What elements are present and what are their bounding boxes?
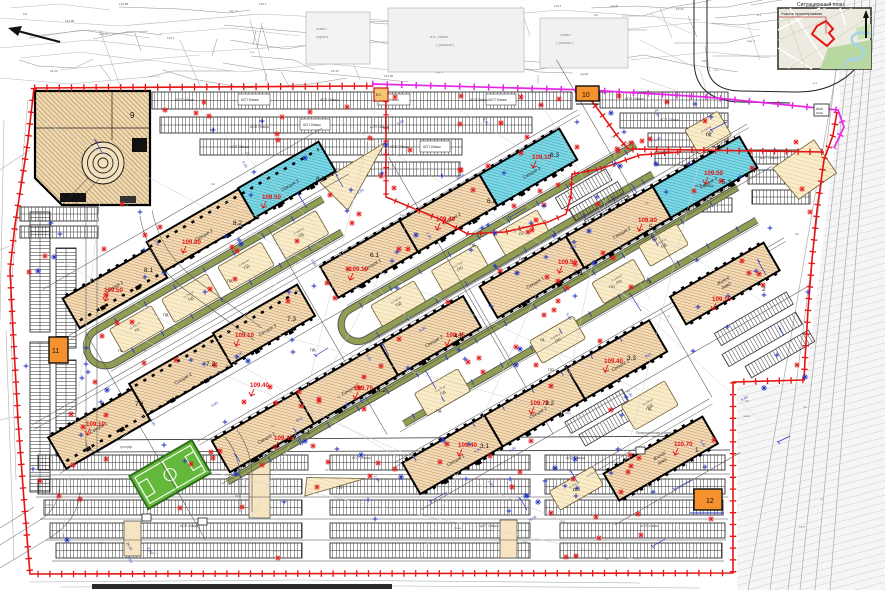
svg-text:ПД: ПД (652, 237, 658, 241)
svg-text:КН: КН (427, 521, 431, 525)
svg-text:( разрыв ): ( разрыв ) (436, 42, 455, 47)
svg-text:АСП 10маш: АСП 10маш (470, 98, 489, 102)
svg-text:АСП 10маш: АСП 10маш (625, 97, 644, 101)
svg-text:ПД: ПД (310, 348, 316, 352)
svg-text:АСП 24маш: АСП 24маш (480, 524, 499, 528)
svg-text:4.3: 4.3 (454, 333, 463, 340)
svg-text:под. 9: под. 9 (99, 32, 108, 36)
svg-text:н.з.: н.з. (757, 13, 762, 17)
svg-text:сарай: сарай (610, 4, 619, 8)
svg-text:125.1: 125.1 (554, 4, 562, 8)
svg-text:123.88: 123.88 (119, 2, 129, 6)
svg-text:9: 9 (130, 111, 135, 120)
svg-text:3.2: 3.2 (545, 400, 554, 407)
svg-text:АСП 10маш: АСП 10маш (303, 123, 321, 127)
svg-text:н.з.: н.з. (813, 81, 818, 85)
svg-text:ПО: ПО (548, 368, 554, 372)
svg-text:КН: КН (611, 135, 615, 139)
svg-text:н.з.: н.з. (714, 68, 719, 72)
svg-text:КТП: КТП (46, 503, 52, 507)
svg-text:ПД: ПД (163, 313, 169, 317)
svg-text:АСП 24маш: АСП 24маш (180, 524, 199, 528)
svg-text:109.15: 109.15 (712, 296, 731, 303)
svg-text:КН: КН (702, 59, 706, 63)
svg-text:2КЖ: 2КЖ (98, 541, 104, 545)
svg-text:АСП 10маш: АСП 10маш (695, 184, 714, 188)
svg-text:ГД: ГД (523, 540, 526, 544)
svg-text:тротуар: тротуар (120, 445, 132, 449)
svg-text:под. 9: под. 9 (229, 9, 238, 13)
svg-text:тр.: тр. (820, 497, 824, 501)
svg-text:109.10: 109.10 (86, 421, 105, 428)
svg-text:7.3: 7.3 (287, 316, 296, 323)
svg-text:отвал: отвал (560, 32, 571, 37)
svg-text:КТП: КТП (799, 525, 805, 529)
svg-text:тр.: тр. (571, 157, 575, 161)
svg-text:109.80: 109.80 (182, 239, 201, 246)
svg-text:11: 11 (52, 348, 59, 355)
svg-text:6.3: 6.3 (550, 152, 559, 159)
svg-text:110.70: 110.70 (674, 441, 693, 448)
svg-text:КН: КН (745, 399, 749, 403)
svg-text:125.1: 125.1 (167, 36, 175, 40)
svg-text:109.45: 109.45 (274, 435, 293, 442)
svg-text:12: 12 (706, 498, 714, 505)
svg-text:109.75: 109.75 (354, 385, 373, 392)
svg-text:ГД: ГД (647, 280, 652, 284)
svg-text:АСП 10маш: АСП 10маш (370, 125, 389, 129)
svg-text:КН: КН (803, 405, 807, 409)
svg-text:АСП 10маш: АСП 10маш (660, 118, 679, 122)
svg-text:АСП 10маш: АСП 10маш (230, 145, 249, 149)
svg-text:КК: КК (125, 203, 129, 207)
svg-text:3м3м: 3м3м (816, 111, 823, 115)
svg-text:125.1: 125.1 (259, 2, 267, 6)
svg-text:ПО: ПО (609, 285, 615, 289)
svg-text:1: 1 (695, 447, 699, 454)
svg-text:Ситуационный план: Ситуационный план (797, 1, 844, 8)
svg-text:грунта: грунта (316, 34, 329, 39)
svg-text:Участок проектирования: Участок проектирования (781, 12, 822, 16)
svg-text:ГД: ГД (655, 108, 658, 112)
svg-text:( раскоп ): ( раскоп ) (556, 40, 574, 45)
svg-text:АСП 10маш: АСП 10маш (390, 145, 409, 149)
svg-text:109.40: 109.40 (250, 382, 269, 389)
svg-text:сущ.: сущ. (569, 434, 575, 438)
svg-text:сущ.: сущ. (150, 551, 156, 555)
svg-text:109.10: 109.10 (349, 266, 368, 273)
svg-text:8.1: 8.1 (144, 267, 153, 274)
svg-text:109.40: 109.40 (604, 358, 623, 365)
svg-text:4.2: 4.2 (377, 387, 386, 394)
svg-text:ПД: ПД (646, 407, 652, 411)
svg-text:8.2: 8.2 (233, 220, 242, 227)
svg-text:н.з.: н.з. (250, 50, 255, 54)
svg-text:5.3: 5.3 (722, 179, 731, 186)
svg-text:АСП 10маш: АСП 10маш (175, 98, 194, 102)
svg-text:18.40: 18.40 (50, 69, 58, 73)
svg-text:18.40: 18.40 (676, 7, 684, 11)
svg-text:АСП 24маш: АСП 24маш (640, 524, 659, 528)
svg-text:109.50: 109.50 (104, 287, 123, 294)
svg-text:ГД: ГД (795, 232, 798, 236)
svg-text:ГД: ГД (645, 201, 648, 205)
svg-text:109.10: 109.10 (235, 332, 254, 339)
svg-text:ПД: ПД (227, 279, 233, 283)
svg-text:8.3: 8.3 (316, 176, 325, 183)
svg-text:ПД: ПД (470, 243, 476, 247)
svg-text:АСП 10маш: АСП 10маш (489, 98, 507, 102)
svg-text:2КЖ: 2КЖ (565, 411, 571, 415)
svg-text:ПД: ПД (706, 133, 712, 137)
svg-text:7.2: 7.2 (206, 361, 215, 368)
svg-text:9КЖ: 9КЖ (295, 289, 301, 293)
svg-text:ГД: ГД (540, 338, 545, 342)
svg-text:109.80: 109.80 (638, 217, 657, 224)
svg-text:2КЖ: 2КЖ (225, 364, 231, 368)
svg-text:АСП 10маш: АСП 10маш (250, 125, 269, 129)
svg-text:прд: прд (560, 519, 565, 523)
svg-text:КК: КК (325, 468, 329, 472)
svg-text:6.1: 6.1 (370, 252, 379, 259)
svg-text:7.1: 7.1 (135, 401, 144, 408)
svg-text:109.50: 109.50 (262, 194, 281, 201)
svg-text:КН: КН (23, 12, 27, 16)
svg-text:ПД: ПД (519, 257, 525, 261)
svg-text:АСП 10маш: АСП 10маш (760, 156, 779, 160)
svg-text:Пс: Пс (118, 349, 123, 353)
svg-text:ПХс: ПХс (573, 488, 580, 492)
svg-text:123.88: 123.88 (65, 19, 75, 23)
svg-text:109.10: 109.10 (532, 154, 551, 161)
svg-text:5.1: 5.1 (574, 270, 583, 277)
svg-text:КН: КН (211, 182, 215, 186)
svg-text:2: 2 (762, 286, 766, 293)
svg-text:КК: КК (271, 424, 275, 428)
svg-text:3.3: 3.3 (627, 355, 636, 362)
svg-text:ПД: ПД (436, 409, 442, 413)
svg-text:10: 10 (582, 92, 590, 99)
svg-text:t.c.: t.c. (605, 557, 609, 561)
svg-text:123.88: 123.88 (384, 74, 394, 78)
svg-text:5.2: 5.2 (649, 224, 658, 231)
svg-text:ПФ: ПФ (337, 486, 343, 490)
svg-text:109.40: 109.40 (458, 442, 477, 449)
svg-text:ГД: ГД (337, 395, 340, 399)
svg-text:АСП 10маш: АСП 10маш (352, 456, 371, 460)
svg-text:ГД: ГД (246, 151, 249, 155)
svg-text:газон: газон (454, 526, 462, 530)
svg-text:КН: КН (594, 13, 598, 17)
svg-text:18.40: 18.40 (331, 69, 339, 73)
svg-text:3.1: 3.1 (480, 443, 489, 450)
svg-text:прд: прд (240, 484, 245, 488)
svg-text:ГД: ГД (143, 348, 146, 352)
svg-text:отвал: отвал (316, 26, 327, 31)
svg-text:АСП 10маш: АСП 10маш (320, 98, 339, 102)
svg-text:6.2: 6.2 (487, 198, 496, 205)
svg-text:тр.: тр. (667, 314, 671, 318)
svg-text:сарай: сарай (580, 72, 589, 76)
svg-text:и.к. отвал: и.к. отвал (430, 34, 449, 39)
svg-text:АСП 10маш: АСП 10маш (241, 98, 259, 102)
svg-text:9КЖ: 9КЖ (235, 494, 241, 498)
svg-text:КТП: КТП (273, 549, 279, 553)
svg-text:4.1: 4.1 (301, 429, 310, 436)
svg-text:109.50: 109.50 (558, 259, 577, 266)
svg-text:газон: газон (743, 414, 751, 418)
svg-text:109.50: 109.50 (704, 170, 723, 177)
svg-text:109.40: 109.40 (436, 216, 455, 223)
svg-text:АСП 10маш: АСП 10маш (423, 145, 441, 149)
svg-text:КН: КН (400, 213, 404, 217)
